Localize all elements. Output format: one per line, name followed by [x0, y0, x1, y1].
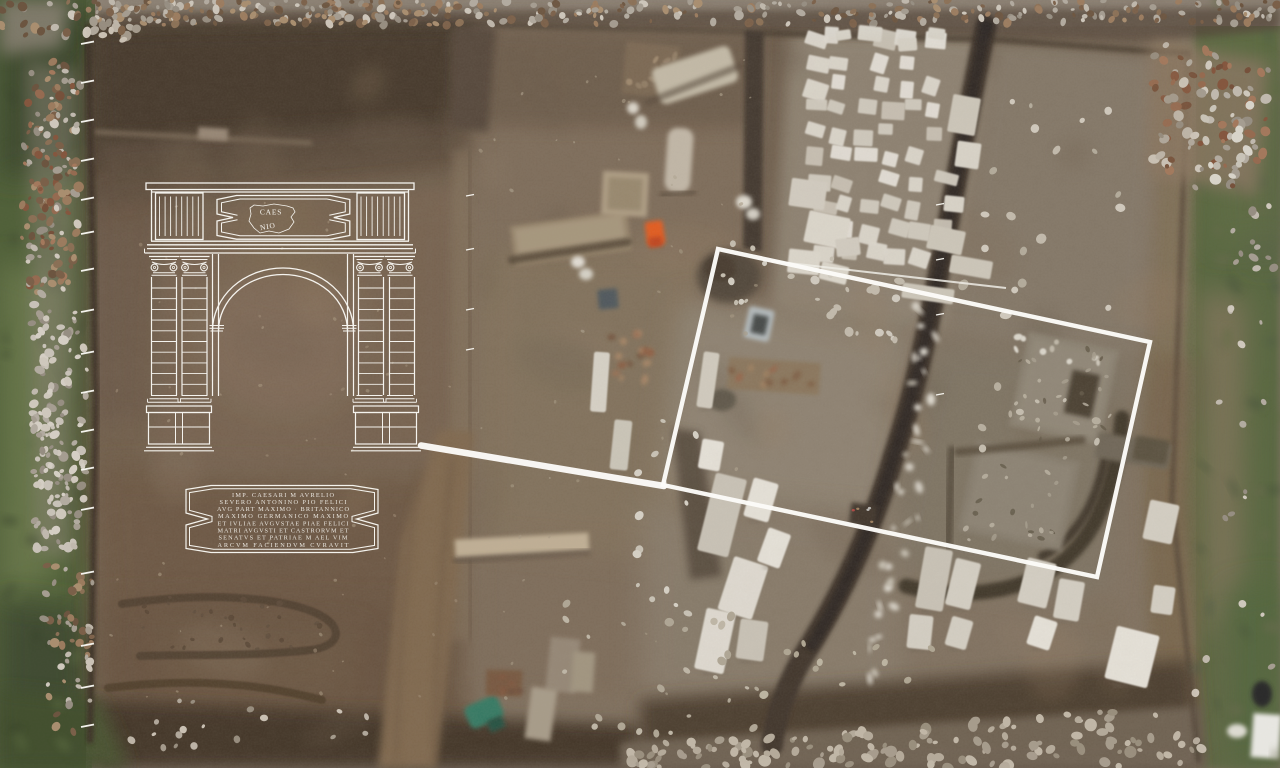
svg-text:AVG PART MAXIMO · BRITANNICO: AVG PART MAXIMO · BRITANNICO: [217, 506, 349, 513]
svg-text:ET IVLIAE AVGVSTAE PIAE FELICI: ET IVLIAE AVGVSTAE PIAE FELICI: [218, 520, 349, 527]
svg-text:MATRI AVGVSTI ET CASTRORVM ET: MATRI AVGVSTI ET CASTRORVM ET: [218, 528, 349, 535]
svg-text:ARCVM FACIENDVM CVRAVIT: ARCVM FACIENDVM CVRAVIT: [218, 542, 349, 549]
svg-text:MAXIMO GERMANICO MAXIMO: MAXIMO GERMANICO MAXIMO: [218, 513, 348, 520]
svg-text:IMP. CAESARI M AVRELIO: IMP. CAESARI M AVRELIO: [232, 492, 334, 499]
svg-text:CAES: CAES: [260, 208, 282, 217]
svg-text:SENATVS ET PATRIAE M AEL VIM: SENATVS ET PATRIAE M AEL VIM: [219, 535, 348, 542]
